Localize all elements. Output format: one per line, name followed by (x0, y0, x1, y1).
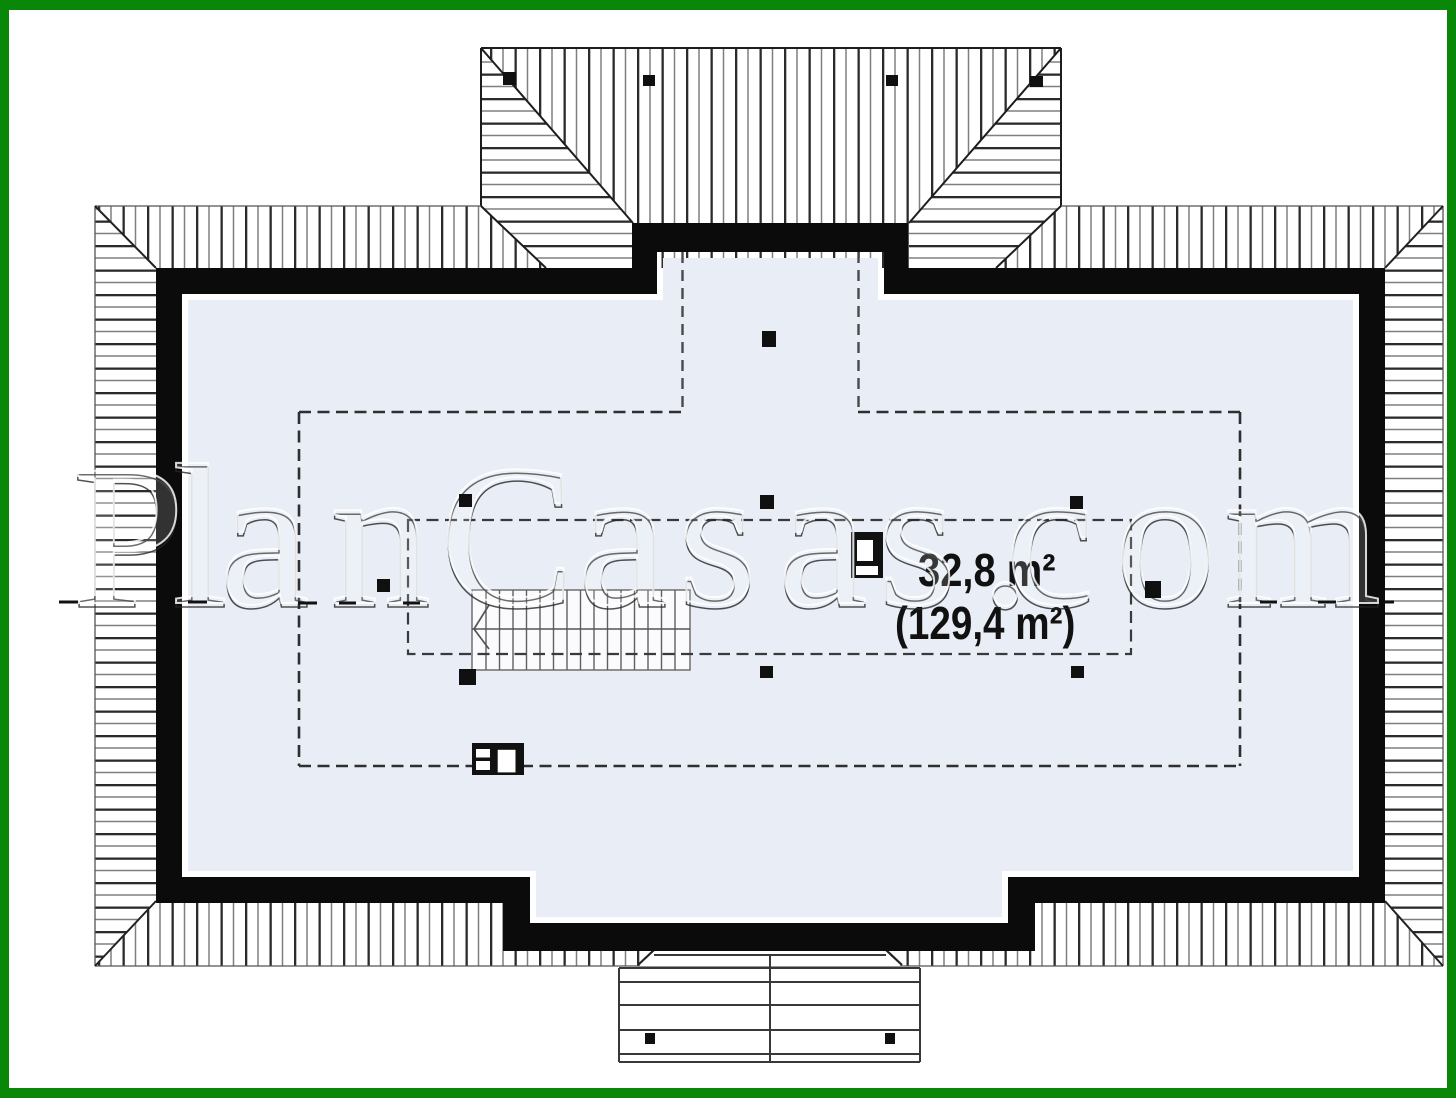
svg-text:a: a (778, 423, 868, 647)
svg-text:a: a (578, 423, 668, 647)
svg-text:n: n (330, 423, 431, 647)
svg-text:C: C (440, 423, 575, 647)
svg-text:a: a (220, 423, 310, 647)
svg-text:c: c (1005, 423, 1095, 647)
svg-text:o: o (1115, 423, 1216, 647)
svg-text:s: s (878, 423, 957, 647)
svg-text:m: m (1224, 423, 1381, 647)
svg-text:s: s (678, 423, 757, 647)
svg-text:P: P (72, 423, 184, 647)
